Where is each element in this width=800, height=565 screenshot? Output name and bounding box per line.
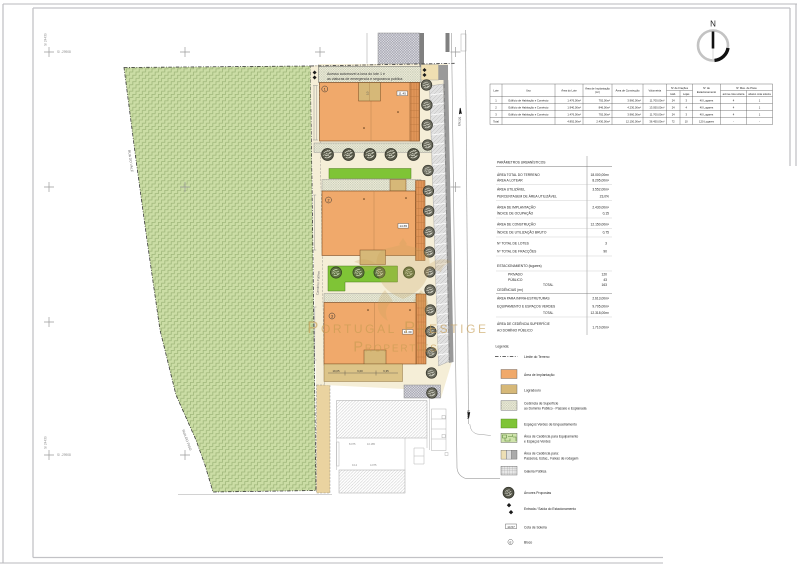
svg-text:EN125: EN125 xyxy=(457,116,461,126)
svg-text:Nº de: Nº de xyxy=(703,86,710,90)
svg-text:TOTAL: TOTAL xyxy=(543,283,553,287)
svg-text:Lote: Lote xyxy=(493,89,499,93)
svg-text:1.476,00m²: 1.476,00m² xyxy=(567,98,581,102)
svg-text:12.150,00m²: 12.150,00m² xyxy=(626,119,641,123)
svg-text:Passeios, Estac., Faixas de ro: Passeios, Estac., Faixas de rodagem xyxy=(524,456,579,460)
svg-text:11.700,00m³: 11.700,00m³ xyxy=(650,112,665,116)
svg-text:Logradouro: Logradouro xyxy=(524,388,541,392)
svg-text:Hab.: Hab. xyxy=(670,92,676,96)
svg-text:12.318,00m²: 12.318,00m² xyxy=(590,311,609,315)
svg-text:11.45: 11.45 xyxy=(398,92,406,96)
svg-text:Limite do Terreno: Limite do Terreno xyxy=(524,355,550,359)
svg-text:846,00m²: 846,00m² xyxy=(599,105,610,109)
svg-text:Área de Cedência para Equipame: Área de Cedência para Equipamento xyxy=(524,434,578,438)
svg-text:Árvores Propostas: Árvores Propostas xyxy=(524,491,551,495)
svg-text:Espaços Verdes de Enquadrament: Espaços Verdes de Enquadramento xyxy=(524,423,577,427)
svg-text:Nº Max. de Pisos: Nº Max. de Pisos xyxy=(736,86,757,90)
svg-text:ÍNDICE DE OCUPAÇÃO: ÍNDICE DE OCUPAÇÃO xyxy=(497,211,534,216)
svg-text:14.65: 14.65 xyxy=(399,224,407,228)
svg-text:12.150,00m²: 12.150,00m² xyxy=(590,223,609,227)
svg-text:11.700,00m³: 11.700,00m³ xyxy=(650,98,665,102)
svg-text:ÁREA UTILIZÁVEL: ÁREA UTILIZÁVEL xyxy=(497,188,525,192)
svg-text:Nº TOTAL DE LOTES: Nº TOTAL DE LOTES xyxy=(497,242,530,246)
svg-text:S/ -29908: S/ -29908 xyxy=(57,50,71,54)
svg-text:3.960,00m²: 3.960,00m² xyxy=(627,98,641,102)
svg-text:8.075: 8.075 xyxy=(349,442,356,446)
svg-text:(m²): (m²) xyxy=(595,90,600,94)
svg-text:ÍNDICE DE UTILIZAÇÃO BRUTO: ÍNDICE DE UTILIZAÇÃO BRUTO xyxy=(497,230,547,235)
svg-text:8.295,00m²: 8.295,00m² xyxy=(592,179,610,183)
svg-text:792,00m²: 792,00m² xyxy=(599,112,610,116)
svg-text:Cota de Soleira: Cota de Soleira xyxy=(524,525,547,529)
svg-text:43: 43 xyxy=(603,278,607,282)
svg-text:24: 24 xyxy=(672,98,675,102)
svg-text:4.075: 4.075 xyxy=(370,463,377,467)
svg-text:EQUIPAMENTO E ESPAÇOS VERDES: EQUIPAMENTO E ESPAÇOS VERDES xyxy=(497,305,556,309)
svg-text:Área de Construção: Área de Construção xyxy=(616,89,640,93)
svg-text:72: 72 xyxy=(672,119,675,123)
svg-text:2: 2 xyxy=(328,198,330,202)
svg-text:ÁREA TOTAL DO TERRENO: ÁREA TOTAL DO TERRENO xyxy=(497,173,540,177)
svg-text:Volumetria: Volumetria xyxy=(648,89,661,93)
svg-text:S/ 24439: S/ 24439 xyxy=(44,436,48,449)
svg-text:Acesso automovel a lona do lot: Acesso automovel a lona do lote 1 e xyxy=(327,72,385,76)
svg-text:24: 24 xyxy=(672,105,675,109)
svg-text:N: N xyxy=(710,20,716,29)
svg-text:Edifício de Habitação e Comérc: Edifício de Habitação e Comércio xyxy=(509,98,549,102)
svg-text:3: 3 xyxy=(605,242,607,246)
svg-text:40 Lugares: 40 Lugares xyxy=(700,112,714,116)
svg-text:ESTACIONAMENTO (lugares): ESTACIONAMENTO (lugares) xyxy=(497,264,542,268)
svg-text:2.430,00m²: 2.430,00m² xyxy=(596,119,610,123)
svg-text:ÁREA DE CONSTRUÇÃO: ÁREA DE CONSTRUÇÃO xyxy=(497,222,536,227)
svg-text:acima cota soleira: acima cota soleira xyxy=(723,92,745,96)
svg-text:Área de Implantação: Área de Implantação xyxy=(524,373,555,377)
svg-text:as viaturas de emergencia e se: as viaturas de emergencia e seguranca pu… xyxy=(327,77,402,81)
svg-text:14.57: 14.57 xyxy=(507,525,515,529)
svg-text:Legenda:: Legenda: xyxy=(496,345,510,349)
svg-text:Galeria Pública: Galeria Pública xyxy=(524,470,547,474)
svg-text:36.450,00m³: 36.450,00m³ xyxy=(649,119,664,123)
svg-text:2.613,00m²: 2.613,00m² xyxy=(592,297,610,301)
svg-text:24: 24 xyxy=(672,112,675,116)
svg-text:ÁREA DE IMPLANTAÇÃO: ÁREA DE IMPLANTAÇÃO xyxy=(497,205,536,210)
svg-text:23,0%: 23,0% xyxy=(600,195,609,199)
svg-text:e Espaços Verdes: e Espaços Verdes xyxy=(524,439,551,443)
svg-text:3.960,00m²: 3.960,00m² xyxy=(627,112,641,116)
svg-text:S/ 24439: S/ 24439 xyxy=(44,33,48,46)
svg-text:4.230,00m²: 4.230,00m² xyxy=(627,105,641,109)
svg-text:PARÂMETROS URBANÍSTICOS: PARÂMETROS URBANÍSTICOS xyxy=(497,161,546,165)
svg-text:-: - xyxy=(733,120,734,123)
svg-text:EN125: EN125 xyxy=(466,410,470,420)
svg-text:ÁREA PARA INFRA-ESTRUTURAS: ÁREA PARA INFRA-ESTRUTURAS xyxy=(497,297,550,301)
svg-text:ÁREA A LOTEAR: ÁREA A LOTEAR xyxy=(497,179,523,183)
svg-text:ÁREA DE CEDÊNCIA SUPERFÍCIE: ÁREA DE CEDÊNCIA SUPERFÍCIE xyxy=(497,321,551,326)
svg-text:10.185: 10.185 xyxy=(367,442,375,446)
svg-text:PERCENTAGEM DE ÁREA UTILIZÁVEL: PERCENTAGEM DE ÁREA UTILIZÁVEL xyxy=(497,195,557,199)
svg-text:0,15: 0,15 xyxy=(603,212,610,216)
svg-text:PRIVADO: PRIVADO xyxy=(508,273,523,277)
svg-text:0,75: 0,75 xyxy=(603,231,610,235)
svg-text:120: 120 xyxy=(601,273,607,277)
svg-text:1.476,00m²: 1.476,00m² xyxy=(567,112,581,116)
svg-text:Properties: Properties xyxy=(353,340,438,356)
svg-text:40 Lugares: 40 Lugares xyxy=(700,105,714,109)
svg-text:Bloco: Bloco xyxy=(524,540,532,544)
svg-text:S/ -29908: S/ -29908 xyxy=(57,453,71,457)
svg-text:AO DOMÍNIO PÚBLICO: AO DOMÍNIO PÚBLICO xyxy=(497,329,533,333)
svg-text:Nº de Frações: Nº de Frações xyxy=(671,86,689,90)
svg-text:Portugal Prestige: Portugal Prestige xyxy=(307,319,488,337)
svg-text:1.710,00m²: 1.710,00m² xyxy=(592,326,610,330)
svg-text:E: E xyxy=(509,540,511,544)
svg-text:120 Lugares: 120 Lugares xyxy=(699,119,715,123)
svg-text:4.892,00m²: 4.892,00m² xyxy=(567,119,581,123)
svg-text:Nº TOTAL DE FRACÇÕES: Nº TOTAL DE FRACÇÕES xyxy=(497,249,537,254)
svg-text:6,35: 6,35 xyxy=(383,369,389,373)
svg-text:PÚBLICO: PÚBLICO xyxy=(508,278,523,282)
svg-text:Entrada / Saída do Estacioname: Entrada / Saída do Estacionamento xyxy=(524,507,576,511)
svg-text:Edifício de Habitação e Comérc: Edifício de Habitação e Comércio xyxy=(509,105,549,109)
svg-text:Estacionamento: Estacionamento xyxy=(697,90,717,94)
svg-text:ao Domínio Público - Passeio e: ao Domínio Público - Passeio e Esplanada xyxy=(524,407,587,411)
svg-text:Área de Implantação: Área de Implantação xyxy=(585,87,610,91)
svg-text:Cedência de Superfície: Cedência de Superfície xyxy=(524,402,558,406)
svg-text:abaixo cota soleira: abaixo cota soleira xyxy=(748,92,771,96)
svg-text:TOTAL: TOTAL xyxy=(543,311,553,315)
svg-text:Lojas: Lojas xyxy=(683,92,690,96)
svg-text:9.705,00m²: 9.705,00m² xyxy=(592,305,610,309)
svg-text:Total: Total xyxy=(493,119,499,123)
svg-text:163: 163 xyxy=(601,283,607,287)
svg-text:Área do Lote: Área do Lote xyxy=(561,89,577,93)
svg-text:6,00: 6,00 xyxy=(357,369,363,373)
svg-text:90: 90 xyxy=(603,250,607,254)
svg-text:CEDÊNCIAS (m²): CEDÊNCIAS (m²) xyxy=(497,287,523,292)
svg-text:40 Lugares: 40 Lugares xyxy=(700,98,714,102)
svg-text:-: - xyxy=(759,120,760,123)
svg-text:Uso: Uso xyxy=(526,89,531,93)
svg-text:13.050,00m³: 13.050,00m³ xyxy=(649,105,664,109)
svg-text:9.12: 9.12 xyxy=(352,463,358,467)
svg-text:18.000,00m²: 18.000,00m² xyxy=(590,173,609,177)
svg-text:792,00m²: 792,00m² xyxy=(599,98,610,102)
svg-text:Área de Cedência para:: Área de Cedência para: xyxy=(524,451,559,455)
svg-text:1.940,00m²: 1.940,00m² xyxy=(567,105,581,109)
svg-text:19,05: 19,05 xyxy=(333,369,340,373)
svg-text:1: 1 xyxy=(324,87,326,91)
svg-text:Edifício de Habitação e Comérc: Edifício de Habitação e Comércio xyxy=(509,112,549,116)
svg-text:3.552,00m²: 3.552,00m² xyxy=(592,188,610,192)
svg-text:3: 3 xyxy=(331,314,333,318)
svg-text:2.430,00m²: 2.430,00m² xyxy=(592,206,610,210)
svg-text:10: 10 xyxy=(685,119,688,123)
